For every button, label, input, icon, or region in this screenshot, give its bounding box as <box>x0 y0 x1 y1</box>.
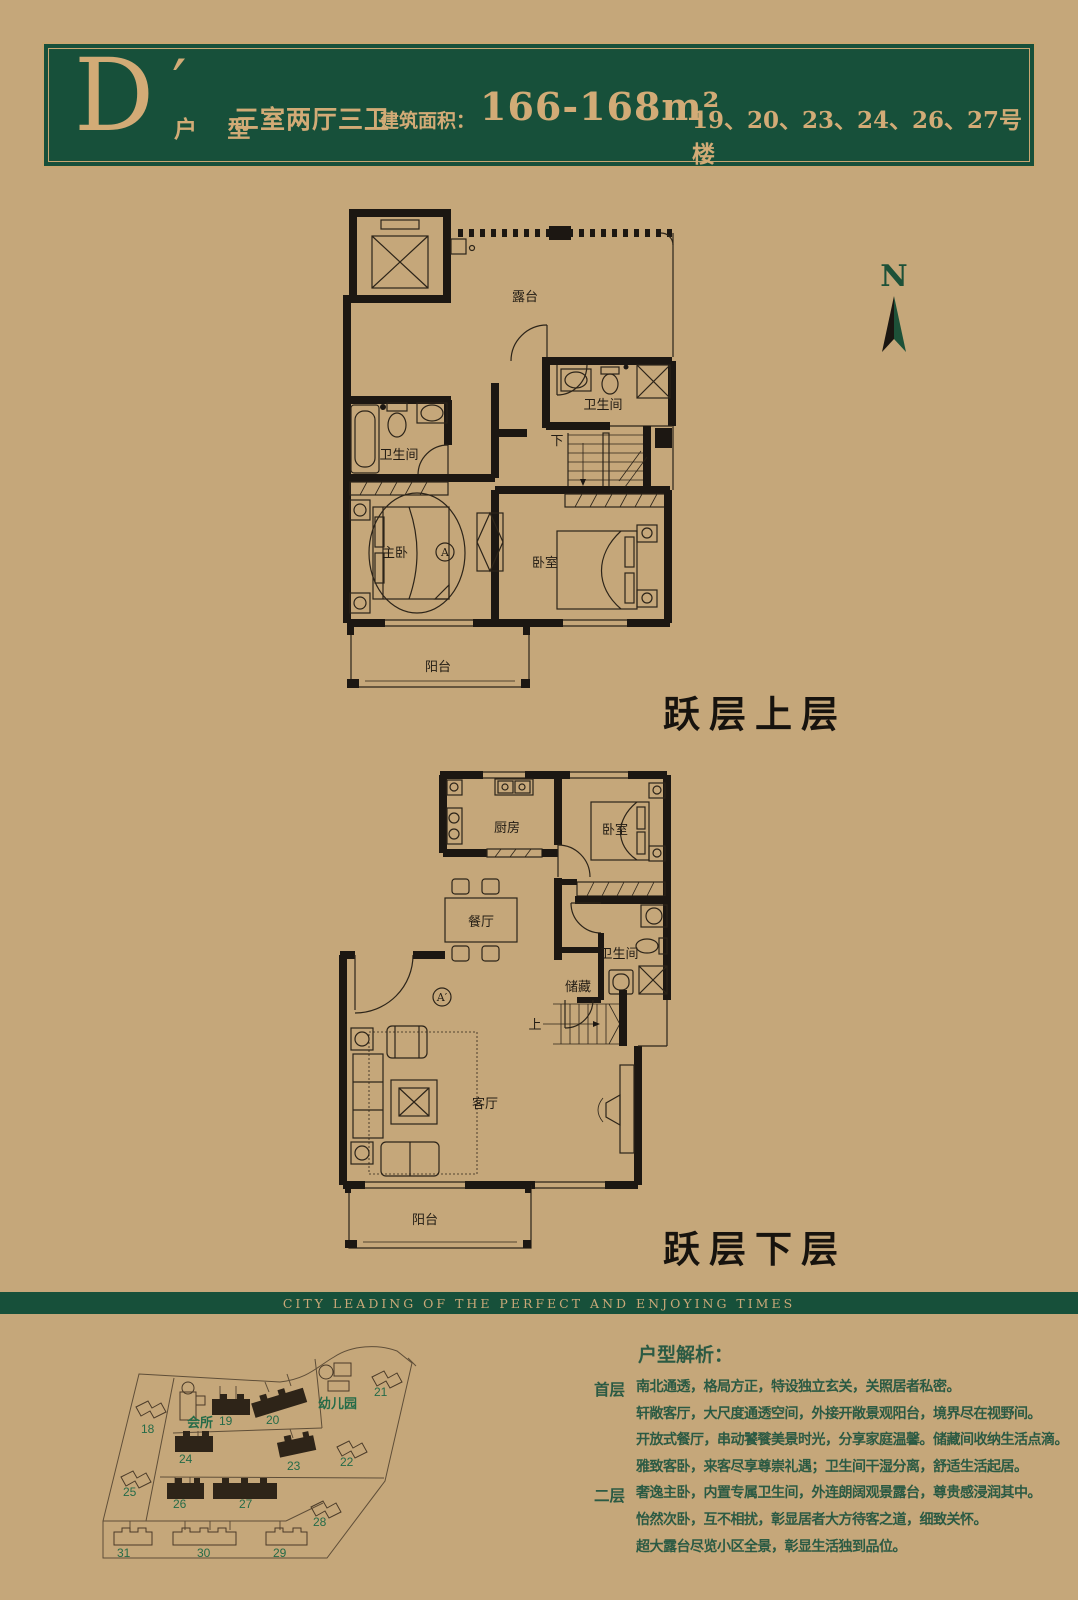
bath-lower-label: 卫生间 <box>599 947 638 962</box>
kitchen: 厨房 <box>443 775 558 857</box>
building-19: 19 <box>219 1414 233 1428</box>
outline-buildings <box>114 1363 402 1545</box>
balcony-upper: 阳台 <box>347 627 530 688</box>
bedroom-lower-label: 卧室 <box>602 822 628 838</box>
second-floor-lines: 奢逸主卧，内置专属卫生间，外连朗阔观景露台，尊贵感浸润其中。 怡然次卧，互不相扰… <box>636 1479 1041 1559</box>
balcony-lower-label: 阳台 <box>412 1213 438 1228</box>
north-walls <box>440 772 667 778</box>
compass-arrow-dark <box>882 296 894 352</box>
lower-floor-plan: 厨房 卧室 餐厅 <box>325 750 695 1250</box>
stairs-up-label: 上 <box>528 1018 541 1033</box>
site-boundary <box>103 1347 416 1558</box>
building-20: 20 <box>266 1413 280 1427</box>
wardrobe-bedroom <box>565 494 665 507</box>
north-label: N <box>880 259 907 294</box>
stairs-down: 下 <box>550 426 647 490</box>
bedroom-label: 卧室 <box>532 555 558 571</box>
analysis-line: 雅致客卧，来客尽享尊崇礼遇；卫生间干湿分离，舒适生活起居。 <box>636 1453 1068 1480</box>
analysis-section: 户型解析： 首层 南北通透，格局方正，特设独立玄关，关照居者私密。 轩敞客厅，大… <box>560 1340 1065 1559</box>
dining-label: 餐厅 <box>468 914 494 930</box>
second-bedroom: 卧室 <box>532 525 657 609</box>
bathroom-left: 卫生间 <box>347 400 451 475</box>
bath-right-label: 卫生间 <box>583 398 622 413</box>
analysis-line: 奢逸主卧，内置专属卫生间，外连朗阔观景露台，尊贵感浸润其中。 <box>636 1479 1041 1506</box>
kindergarten-label: 幼儿园 <box>318 1396 357 1411</box>
unit-type-letter: D <box>74 36 154 156</box>
analysis-line: 开放式餐厅，串动饕餮美景时光，分享家庭温馨。储藏间收纳生活点滴。 <box>636 1426 1068 1453</box>
terrace-railing <box>458 226 673 357</box>
first-floor-label: 首层 <box>594 1373 636 1479</box>
analysis-line: 轩敞客厅，大尺度通透空间，外接开敞景观阳台，境界尽在视野间。 <box>636 1400 1068 1427</box>
area-label: 建筑面积： <box>380 106 475 133</box>
section-mark-a-prime: A′ <box>436 991 448 1004</box>
entry-door <box>340 955 445 1013</box>
corridor-walls <box>495 383 527 478</box>
analysis-row-second-floor: 二层 奢逸主卧，内置专属卫生间，外连朗阔观景露台，尊贵感浸润其中。 怡然次卧，互… <box>560 1479 1065 1559</box>
analysis-line: 超大露台尽览小区全景，彰显生活独到品位。 <box>636 1533 1041 1560</box>
dining-room: 餐厅 <box>445 879 517 961</box>
terrace-label: 露台 <box>512 290 538 305</box>
upper-plan-caption: 跃层上层 <box>663 684 847 738</box>
plan-header: D ′ 户 型 三室两厅三卫 建筑面积： 166-168m² 19、20、23、… <box>42 42 1036 168</box>
storage-label: 储藏 <box>565 980 591 995</box>
site-map-labels: 会所 幼儿园 18 19 20 21 22 23 24 25 26 27 28 … <box>117 1385 388 1560</box>
compass: N <box>866 256 922 356</box>
balcony-lower: 阳台 <box>345 1185 531 1248</box>
wardrobe-master <box>350 482 448 495</box>
building-18: 18 <box>141 1422 155 1436</box>
building-28: 28 <box>313 1515 327 1529</box>
building-22: 22 <box>340 1455 354 1469</box>
stairs-up: 上 <box>528 990 623 1046</box>
south-walls-lower <box>343 1182 638 1188</box>
analysis-line: 南北通透，格局方正，特设独立玄关，关照居者私密。 <box>636 1373 1068 1400</box>
master-bedroom-label: 主卧 <box>382 546 408 561</box>
building-25: 25 <box>123 1485 137 1499</box>
storage-room: 储藏 <box>558 950 601 1028</box>
building-27: 27 <box>239 1497 253 1511</box>
unit-type-prime: ′ <box>172 52 187 116</box>
stairs-down-label: 下 <box>550 434 563 449</box>
highlighted-buildings <box>167 1383 316 1499</box>
area-value: 166-168m² <box>480 84 720 129</box>
closet <box>477 490 503 623</box>
building-29: 29 <box>273 1546 287 1560</box>
analysis-title: 户型解析： <box>638 1340 1065 1367</box>
building-21: 21 <box>374 1385 388 1399</box>
site-map: 会所 幼儿园 18 19 20 21 22 23 24 25 26 27 28 … <box>90 1332 430 1600</box>
building-30: 30 <box>197 1546 211 1560</box>
elevator-shaft <box>353 213 475 299</box>
building-23: 23 <box>287 1459 301 1473</box>
first-floor-lines: 南北通透，格局方正，特设独立玄关，关照居者私密。 轩敞客厅，大尺度通透空间，外接… <box>636 1373 1068 1479</box>
master-bedroom: A 主卧 <box>350 493 465 613</box>
slogan-text: CITY LEADING OF THE PERFECT AND ENJOYING… <box>283 1296 795 1311</box>
living-label: 客厅 <box>472 1096 498 1112</box>
brochure-page: D ′ 户 型 三室两厅三卫 建筑面积： 166-168m² 19、20、23、… <box>0 0 1078 1600</box>
section-mark-a: A <box>440 546 450 559</box>
clubhouse-label: 会所 <box>187 1415 213 1430</box>
upper-floor-plan: 露台 卫生间 <box>325 195 695 695</box>
building-26: 26 <box>173 1497 187 1511</box>
second-floor-label: 二层 <box>594 1479 636 1559</box>
analysis-line: 怡然次卧，互不相扰，彰显居者大方待客之道，细致关怀。 <box>636 1506 1041 1533</box>
buildings-note: 19、20、23、24、26、27号楼 <box>692 101 1034 169</box>
bath-left-label: 卫生间 <box>379 448 418 463</box>
bedroom-lower: 卧室 <box>558 775 667 898</box>
slogan-banner: CITY LEADING OF THE PERFECT AND ENJOYING… <box>0 1292 1078 1314</box>
analysis-row-first-floor: 首层 南北通透，格局方正，特设独立玄关，关照居者私密。 轩敞客厅，大尺度通透空间… <box>560 1373 1065 1479</box>
balcony-upper-label: 阳台 <box>425 660 451 675</box>
layout-spec: 三室两厅三卫 <box>234 100 390 136</box>
lower-plan-caption: 跃层下层 <box>663 1219 847 1273</box>
terrace-door <box>511 325 547 361</box>
building-24: 24 <box>179 1452 193 1466</box>
compass-arrow-green <box>894 296 906 352</box>
kitchen-label: 厨房 <box>494 820 520 836</box>
building-31: 31 <box>117 1546 131 1560</box>
